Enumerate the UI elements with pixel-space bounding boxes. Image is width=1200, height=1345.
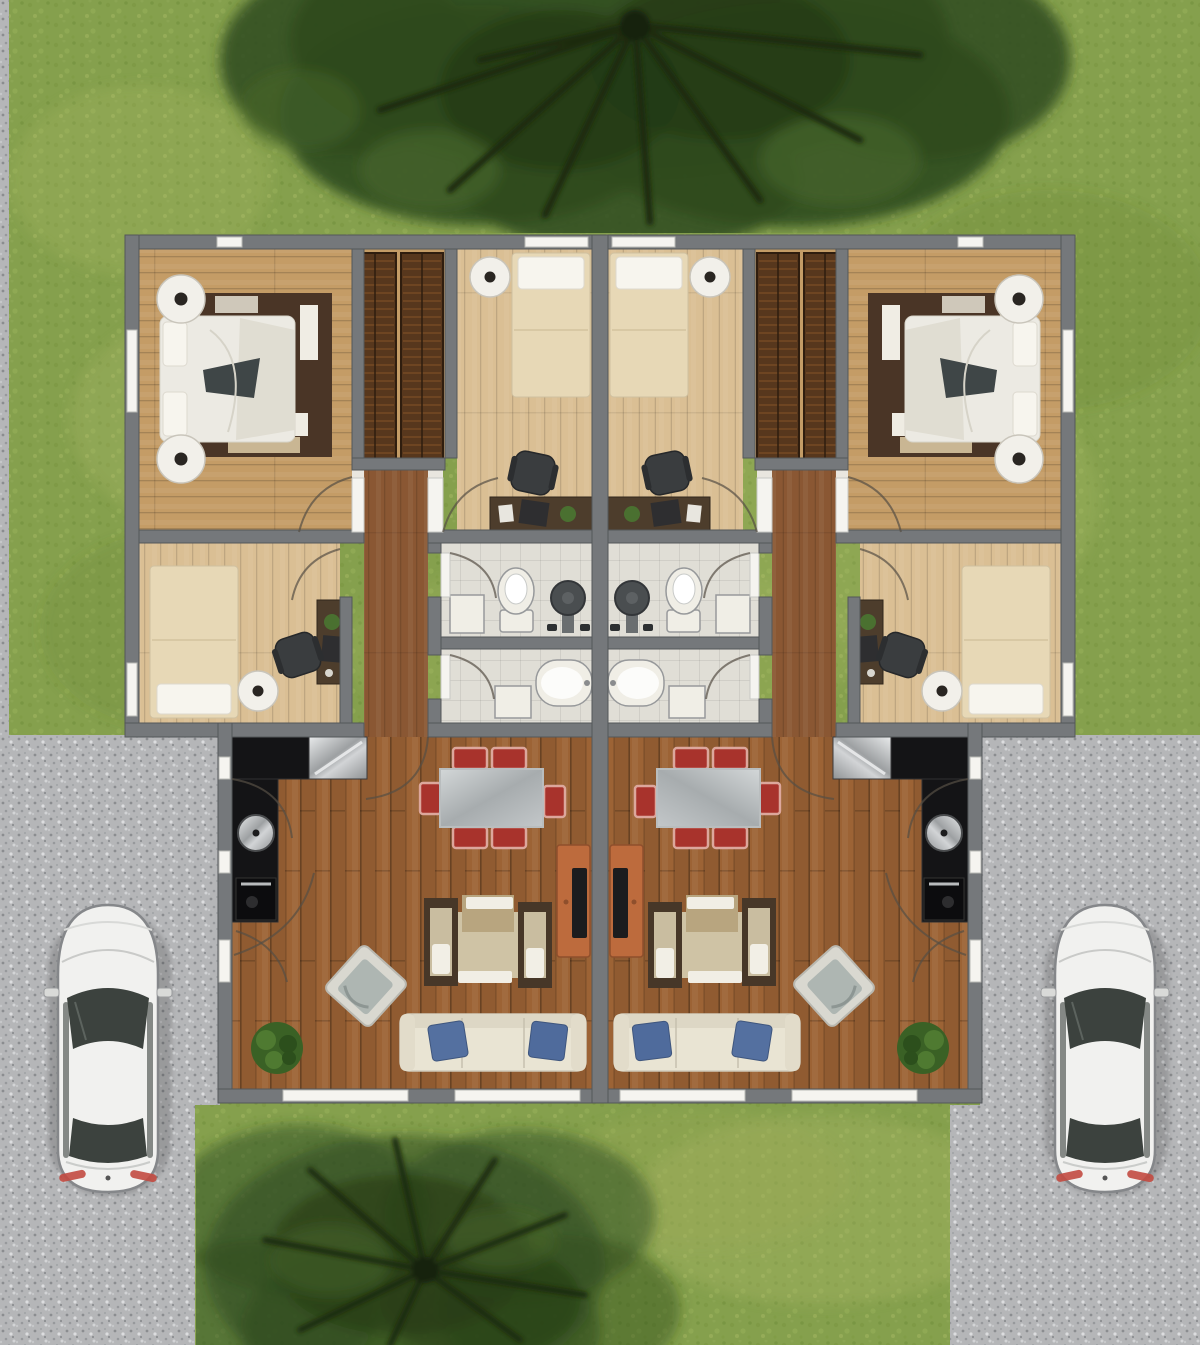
site-plan-render bbox=[0, 0, 1200, 1345]
tv bbox=[572, 868, 587, 938]
bathtub bbox=[536, 660, 592, 706]
dining-table bbox=[440, 769, 543, 827]
wardrobe bbox=[401, 253, 443, 462]
lounge-set bbox=[424, 895, 552, 988]
bath-mat bbox=[495, 686, 531, 718]
window bbox=[217, 237, 242, 247]
floor-plan-canvas bbox=[0, 0, 1200, 1345]
window bbox=[455, 1090, 580, 1101]
wall bbox=[352, 249, 364, 458]
window bbox=[219, 851, 230, 873]
shower-tray bbox=[450, 595, 484, 633]
exterior-wall bbox=[125, 235, 139, 737]
wall bbox=[352, 458, 445, 470]
toilet bbox=[498, 568, 534, 632]
table-lamp bbox=[238, 671, 278, 711]
dining-chair bbox=[544, 786, 565, 817]
single-bed bbox=[512, 253, 590, 397]
car-left bbox=[44, 905, 172, 1196]
exterior-wall bbox=[125, 723, 232, 737]
dining-chair bbox=[492, 748, 526, 769]
sofa bbox=[400, 1014, 586, 1071]
car-mirror bbox=[157, 988, 172, 997]
tree-bottom bbox=[140, 1125, 680, 1345]
room-hallway bbox=[364, 470, 428, 737]
bathroom-door-leaf bbox=[441, 655, 450, 699]
single-bed bbox=[150, 566, 238, 718]
window bbox=[219, 940, 230, 982]
wall bbox=[428, 597, 441, 655]
car-side-window bbox=[63, 1002, 69, 1158]
window bbox=[219, 757, 230, 779]
wall bbox=[428, 530, 592, 543]
wall bbox=[428, 543, 441, 553]
car-side-window bbox=[147, 1002, 153, 1158]
wall bbox=[139, 530, 364, 543]
wall bbox=[340, 597, 352, 723]
window bbox=[127, 330, 137, 412]
sofa-pillow bbox=[427, 1020, 468, 1061]
party-wall bbox=[592, 235, 608, 1103]
table-lamp bbox=[470, 257, 510, 297]
dining-chair bbox=[420, 783, 441, 814]
building bbox=[125, 235, 1075, 1103]
window bbox=[283, 1090, 408, 1101]
car-right bbox=[1041, 905, 1169, 1196]
window bbox=[127, 663, 137, 716]
dining-chair bbox=[453, 748, 487, 769]
double-bed bbox=[160, 316, 295, 442]
tv-sideboard bbox=[557, 845, 590, 957]
dining-chair bbox=[453, 827, 487, 848]
sofa-pillow bbox=[528, 1021, 568, 1061]
dining-chair bbox=[492, 827, 526, 848]
desk bbox=[490, 497, 592, 531]
wall bbox=[428, 699, 441, 723]
door-leaf bbox=[352, 478, 364, 532]
wall bbox=[428, 723, 592, 737]
bathroom-door-leaf bbox=[441, 553, 450, 597]
door-leaf bbox=[428, 478, 443, 532]
exterior-wall bbox=[218, 723, 232, 1103]
desk-plant bbox=[324, 614, 340, 630]
desk-plant bbox=[560, 506, 576, 522]
plant bbox=[251, 1022, 303, 1074]
bedside-lamp bbox=[157, 275, 205, 323]
window bbox=[525, 237, 588, 247]
wall bbox=[445, 249, 457, 458]
bedside-lamp bbox=[157, 435, 205, 483]
wall bbox=[441, 637, 592, 649]
car-mirror bbox=[44, 988, 59, 997]
wall bbox=[232, 723, 364, 737]
